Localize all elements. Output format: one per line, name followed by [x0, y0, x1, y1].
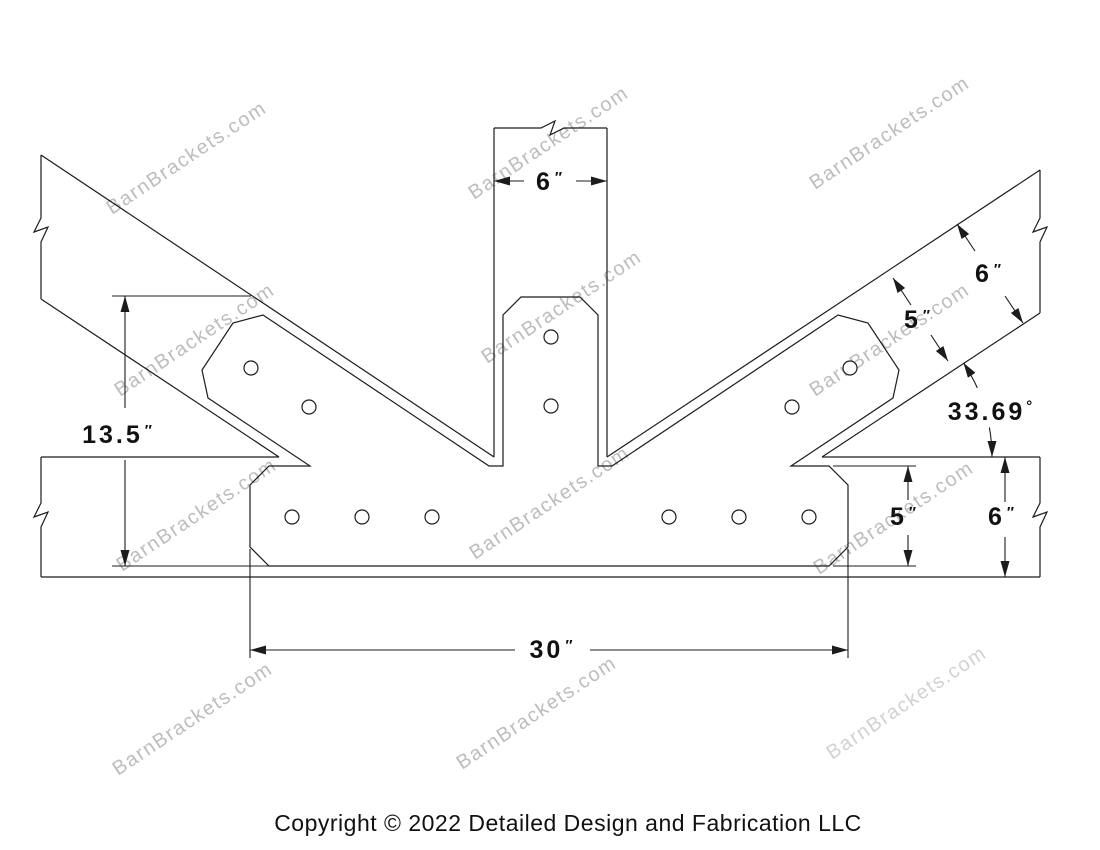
watermark-text: BarnBrackets.com — [806, 72, 974, 194]
arrowhead — [1001, 457, 1010, 473]
arrowhead — [250, 646, 266, 655]
dim-beam-depth: 6″ — [988, 457, 1014, 577]
dim-rafter-strap-label: 5″ — [904, 306, 930, 334]
bolt-hole — [244, 361, 258, 375]
dim-post-width-label: 6″ — [536, 168, 562, 196]
watermark-text: BarnBrackets.com — [823, 642, 991, 764]
bolt-hole — [802, 510, 816, 524]
watermark-text: BarnBrackets.com — [453, 652, 621, 774]
dim-bracket-height-label: 13.5″ — [82, 421, 152, 449]
arrowhead — [936, 346, 948, 361]
arrowhead — [957, 224, 969, 239]
dim-rafter-depth: 6″ — [957, 224, 1023, 323]
copyright-text: Copyright © 2022 Detailed Design and Fab… — [274, 810, 862, 836]
arrowhead — [1011, 308, 1023, 323]
bolt-hole — [302, 400, 316, 414]
arrowhead — [893, 278, 905, 293]
arrowhead — [121, 296, 130, 312]
bolt-hole — [785, 400, 799, 414]
bolt-hole — [843, 361, 857, 375]
dim-rafter-angle-label: 33.69° — [948, 398, 1033, 426]
drawing-page: BarnBrackets.com BarnBrackets.com BarnBr… — [0, 0, 1100, 850]
bolt-hole — [662, 510, 676, 524]
bolt-hole — [544, 330, 558, 344]
arrowhead — [988, 441, 997, 457]
bolt-hole — [425, 510, 439, 524]
arrowhead — [904, 550, 913, 566]
watermark-text: BarnBrackets.com — [109, 658, 277, 780]
watermark-text: BarnBrackets.com — [466, 442, 634, 564]
arrowhead — [963, 363, 975, 378]
bolt-hole — [544, 399, 558, 413]
watermark-text: BarnBrackets.com — [113, 454, 281, 576]
dim-beam-strap-label: 5″ — [890, 503, 916, 531]
watermark-text: BarnBrackets.com — [806, 279, 974, 401]
arrowhead — [832, 646, 848, 655]
arrowhead — [1001, 561, 1010, 577]
arrowhead — [591, 177, 607, 186]
bolt-hole — [732, 510, 746, 524]
dim-rafter-depth-label: 6″ — [975, 260, 1001, 288]
dim-rafter-angle: 33.69° — [948, 363, 1033, 457]
bolt-hole — [285, 510, 299, 524]
arrowhead — [904, 466, 913, 482]
watermark-text: BarnBrackets.com — [103, 97, 271, 219]
dim-bracket-length-label: 30″ — [530, 636, 573, 664]
bolt-hole — [355, 510, 369, 524]
dim-beam-depth-label: 6″ — [988, 503, 1014, 531]
bracket-drawing-canvas: BarnBrackets.com BarnBrackets.com BarnBr… — [0, 0, 1100, 850]
bracket-plate — [202, 297, 899, 566]
